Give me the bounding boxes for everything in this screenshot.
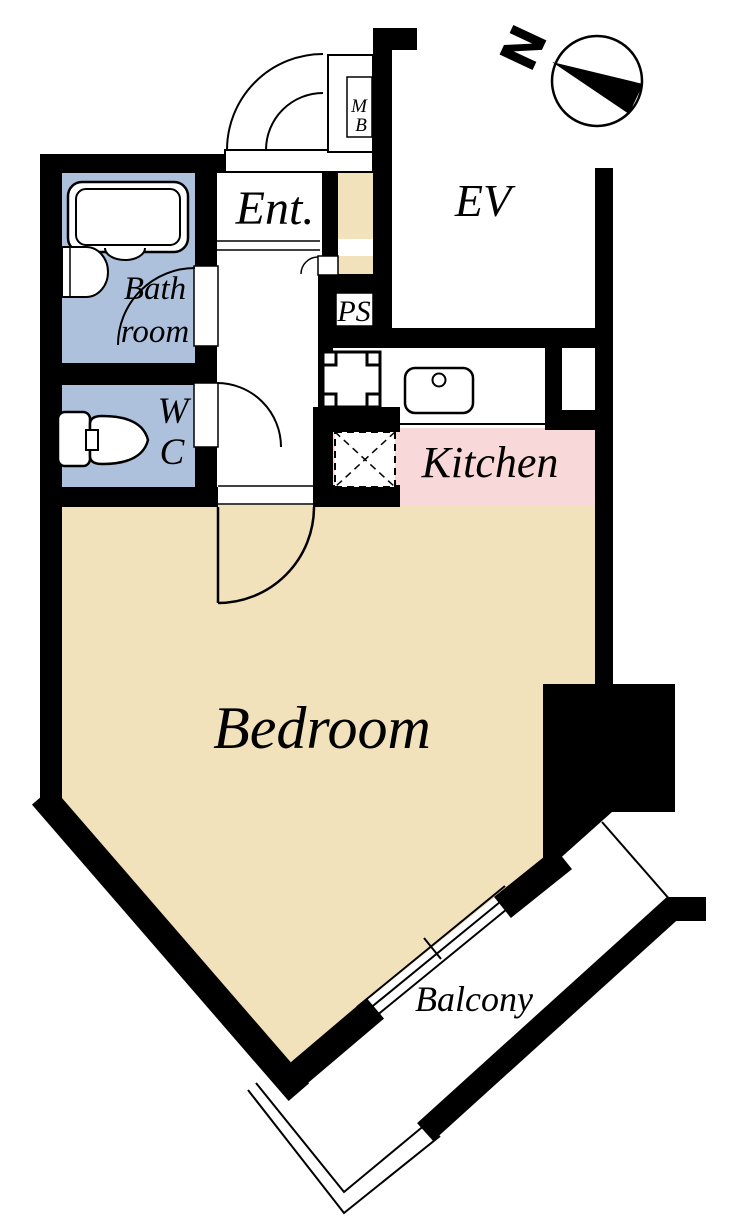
wall-top-stub xyxy=(373,28,417,50)
bath-door-opening xyxy=(194,266,218,346)
wc-label-line2: C xyxy=(160,432,186,473)
kitchen-faucet xyxy=(433,374,446,387)
wc-door-opening xyxy=(194,383,218,447)
bathroom-label-line2: room xyxy=(121,314,189,350)
pillar-corner-br xyxy=(367,394,380,407)
service-hatch-opening xyxy=(318,256,338,275)
kitchen-label: Kitchen xyxy=(421,438,559,487)
wall-pillar-block xyxy=(543,684,675,812)
floor-plan: N Ent. EV M B PS Bath room W C Kitchen B… xyxy=(0,0,740,1228)
meter-box-label-line2: B xyxy=(355,115,367,136)
balcony-label: Balcony xyxy=(415,979,533,1019)
wall-wc-bottom xyxy=(40,487,218,507)
bedroom-opening xyxy=(218,486,313,504)
pipe-space-label: PS xyxy=(336,295,370,328)
wall-counter-right xyxy=(545,348,562,412)
wall-ev-bottom xyxy=(392,328,613,348)
wall-top xyxy=(40,154,225,173)
bathroom-label-line1: Bath xyxy=(124,271,186,307)
pillar-corner-bl xyxy=(323,394,336,407)
wall-bath-wc-separator xyxy=(62,363,195,385)
entrance-floor-strip xyxy=(337,172,373,239)
wall-ev-right xyxy=(595,168,613,688)
wc-label-line1: W xyxy=(158,391,192,432)
service-floor-strip xyxy=(338,256,373,274)
pillar-corner-tl xyxy=(323,352,336,365)
wall-under-alcove xyxy=(545,410,595,430)
bathtub-inner xyxy=(76,189,180,245)
bedroom-label: Bedroom xyxy=(213,695,431,761)
wall-under-pillar xyxy=(313,407,400,432)
bath-sink xyxy=(62,247,108,297)
toilet-seat-joint xyxy=(86,430,98,450)
entry-threshold xyxy=(225,150,373,172)
elevator-label: EV xyxy=(454,175,516,226)
meter-box-label-line1: M xyxy=(350,96,368,117)
wall-ent-right xyxy=(322,172,338,256)
wall-entry-column xyxy=(373,28,392,348)
pillar-corner-tr xyxy=(367,352,380,365)
entrance-label: Ent. xyxy=(235,182,315,235)
wall-left xyxy=(40,154,62,808)
